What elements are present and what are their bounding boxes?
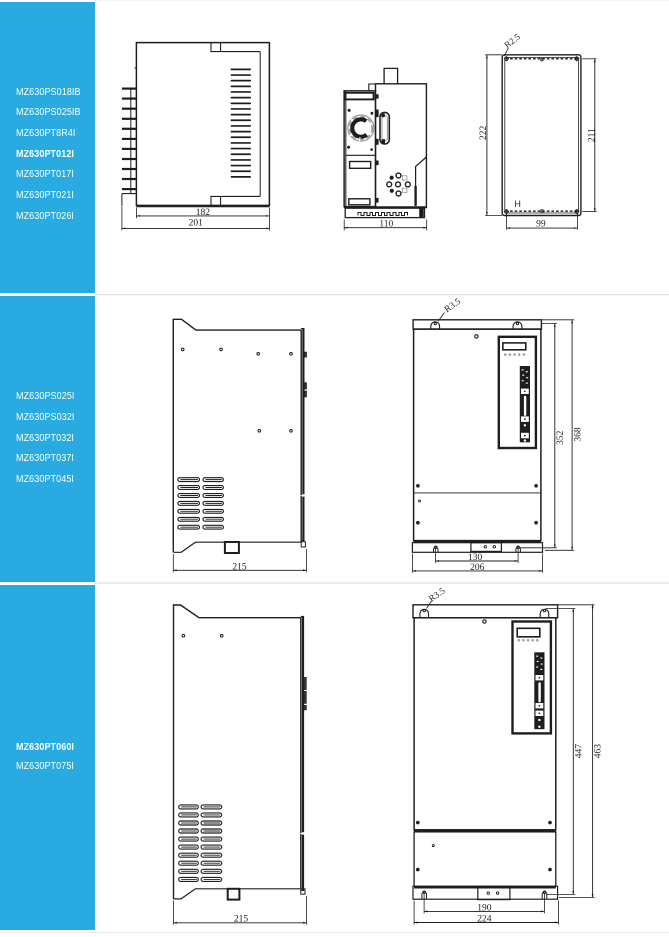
svg-text:215: 215	[232, 562, 247, 572]
svg-text:447: 447	[574, 744, 584, 759]
svg-text:R2.5: R2.5	[502, 31, 522, 50]
svg-text:201: 201	[189, 219, 204, 229]
svg-text:R3.5: R3.5	[442, 296, 462, 314]
svg-text:215: 215	[234, 915, 249, 925]
svg-text:463: 463	[594, 744, 604, 759]
svg-text:222: 222	[479, 126, 489, 141]
svg-text:224: 224	[477, 915, 492, 925]
svg-text:368: 368	[573, 427, 583, 442]
svg-text:130: 130	[468, 553, 483, 563]
svg-text:352: 352	[556, 430, 566, 445]
svg-text:R3.5: R3.5	[427, 585, 447, 603]
svg-text:182: 182	[196, 208, 211, 218]
svg-text:190: 190	[477, 903, 492, 913]
svg-text:110: 110	[379, 219, 393, 229]
svg-text:H: H	[514, 199, 521, 209]
svg-text:206: 206	[470, 563, 485, 573]
svg-text:211: 211	[587, 128, 597, 142]
svg-text:99: 99	[536, 220, 546, 230]
